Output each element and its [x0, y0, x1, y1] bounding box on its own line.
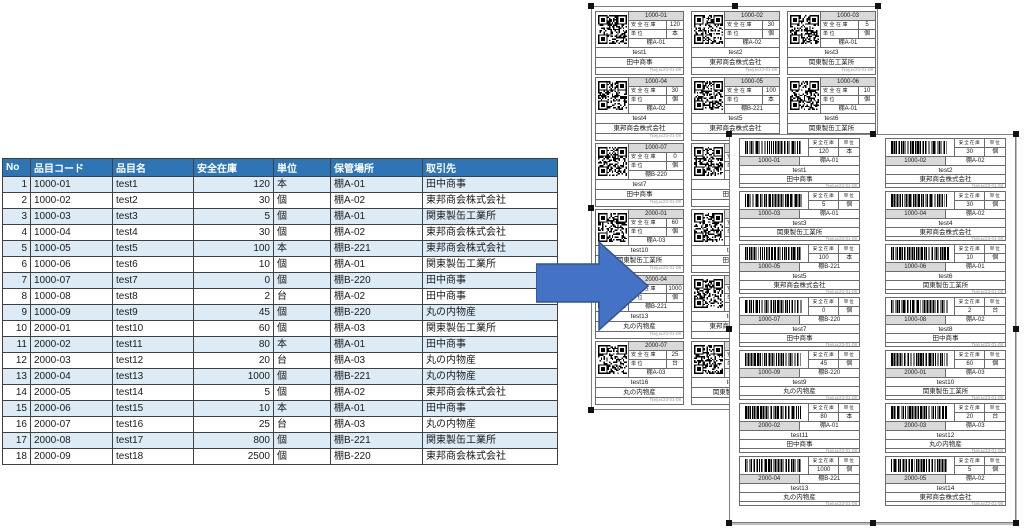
cell-safety-stock[interactable]: 60	[194, 321, 274, 337]
cell-item-code[interactable]: 1000-04	[31, 225, 113, 241]
label-safety-stock-value: 30	[762, 21, 779, 29]
cell-unit[interactable]: 個	[274, 369, 331, 385]
cell-supplier[interactable]: 東邦商会株式会社	[423, 449, 558, 465]
qr-code-icon	[596, 78, 629, 113]
table-row: 9 1000-09 test9 45 個 棚B-220 丸の内物産	[3, 305, 558, 321]
label-footer-note: 作成日23-01-08	[740, 290, 859, 293]
label-safety-stock-caption: 安全在庫	[955, 404, 985, 412]
qr-label: 1000-03 安全在庫 5 単位 個 棚A-01 test3 関東製缶工業所 …	[787, 11, 876, 75]
label-safety-stock-value: 30	[955, 148, 985, 156]
label-item-name: test13	[740, 484, 859, 493]
cell-supplier[interactable]: 田中商事	[423, 337, 558, 353]
barcode-label: 安全在庫 単位 120 本 1000-01 棚A-01 test1 田中商事 作…	[739, 138, 860, 188]
cell-item-code[interactable]: 2000-05	[31, 385, 113, 401]
table-row: 17 2000-08 test17 800 個 棚B-221 関東製缶工業所	[3, 433, 558, 449]
selection-handle[interactable]	[732, 3, 738, 9]
label-location: 棚A-02	[946, 475, 1006, 483]
label-item-name: test16	[596, 378, 683, 388]
cell-location[interactable]: 棚B-221	[331, 241, 423, 257]
barcode-icon	[740, 192, 809, 209]
label-location: 棚A-02	[946, 316, 1006, 324]
label-safety-stock-caption: 安全在庫	[809, 404, 839, 412]
label-item-name: test2	[886, 166, 1005, 175]
label-item-code: 1000-03	[821, 12, 875, 21]
cell-unit[interactable]: 個	[274, 433, 331, 449]
label-location: 棚A-02	[629, 105, 683, 113]
label-unit-caption: 単位	[985, 298, 1005, 306]
label-unit-caption: 単位	[985, 139, 1005, 147]
label-safety-stock-value: 20	[955, 413, 985, 421]
cell-location[interactable]: 棚A-03	[331, 353, 423, 369]
label-safety-stock-caption: 安全在庫	[955, 192, 985, 200]
cell-item-name[interactable]: test11	[113, 337, 194, 353]
label-unit-value: 個	[985, 360, 1005, 368]
selection-handle[interactable]	[588, 205, 594, 211]
barcode-icon	[740, 298, 809, 315]
label-safety-stock-caption: 安全在庫	[809, 351, 839, 359]
cell-item-name[interactable]: test15	[113, 401, 194, 417]
label-location: 棚B-220	[800, 369, 860, 377]
cell-no[interactable]: 3	[3, 209, 31, 225]
cell-location[interactable]: 棚A-03	[331, 321, 423, 337]
cell-no[interactable]: 4	[3, 225, 31, 241]
label-safety-stock-caption: 安全在庫	[955, 139, 985, 147]
label-item-name: test3	[740, 219, 859, 228]
cell-safety-stock[interactable]: 100	[194, 241, 274, 257]
cell-safety-stock[interactable]: 30	[194, 225, 274, 241]
label-footer-note: 作成日23-01-08	[740, 449, 859, 452]
cell-location[interactable]: 棚A-03	[331, 417, 423, 433]
qr-label: 1000-05 安全在庫 100 単位 本 棚B-221 test5 東邦商会株…	[691, 77, 780, 141]
cell-no[interactable]: 11	[3, 337, 31, 353]
label-unit-caption: 単位	[839, 457, 859, 465]
cell-unit[interactable]: 個	[274, 305, 331, 321]
table-row: 12 2000-03 test12 20 台 棚A-03 丸の内物産	[3, 353, 558, 369]
cell-location[interactable]: 棚A-02	[331, 385, 423, 401]
label-footer-note: 作成日23-01-08	[886, 290, 1005, 293]
label-safety-stock-value: 10	[955, 254, 985, 262]
cell-supplier[interactable]: 関東製缶工業所	[423, 209, 558, 225]
arrow-shape[interactable]	[536, 242, 648, 330]
cell-item-code[interactable]: 1000-09	[31, 305, 113, 321]
cell-location[interactable]: 棚B-220	[331, 305, 423, 321]
column-header-1[interactable]: 品目コード	[31, 159, 113, 177]
table-row: 5 1000-05 test5 100 本 棚B-221 東邦商会株式会社	[3, 241, 558, 257]
cell-item-name[interactable]: test16	[113, 417, 194, 433]
qr-code-icon	[692, 276, 725, 311]
selection-handle[interactable]	[1013, 131, 1019, 137]
cell-item-code[interactable]: 2000-03	[31, 353, 113, 369]
cell-item-name[interactable]: test2	[113, 193, 194, 209]
label-unit-caption: 単位	[839, 192, 859, 200]
label-item-code: 1000-04	[629, 78, 683, 87]
cell-no[interactable]: 8	[3, 289, 31, 305]
barcode-label: 安全在庫 単位 45 個 1000-09 棚B-220 test9 丸の内物産 …	[739, 350, 860, 400]
cell-unit[interactable]: 個	[274, 273, 331, 289]
cell-location[interactable]: 棚A-01	[331, 177, 423, 193]
qr-code-icon	[692, 210, 725, 245]
selection-handle[interactable]	[870, 520, 876, 526]
label-unit-caption: 単位	[985, 404, 1005, 412]
cell-location[interactable]: 棚A-02	[331, 225, 423, 241]
cell-unit[interactable]: 個	[274, 385, 331, 401]
selection-handle[interactable]	[726, 131, 732, 137]
label-unit-caption: 単位	[629, 360, 666, 368]
cell-item-code[interactable]: 2000-04	[31, 369, 113, 385]
label-unit-value: 個	[985, 148, 1005, 156]
cell-safety-stock[interactable]: 30	[194, 193, 274, 209]
cell-item-code[interactable]: 1000-07	[31, 273, 113, 289]
cell-item-name[interactable]: test4	[113, 225, 194, 241]
cell-supplier[interactable]: 丸の内物産	[423, 369, 558, 385]
qr-label: 1000-07 安全在庫 0 単位 個 棚B-220 test7 田中商事 作成…	[595, 143, 684, 207]
label-supplier: 田中商事	[740, 440, 859, 449]
label-safety-stock-value: 1000	[809, 466, 839, 474]
cell-safety-stock[interactable]: 20	[194, 353, 274, 369]
cell-no[interactable]: 16	[3, 417, 31, 433]
cell-no[interactable]: 15	[3, 401, 31, 417]
label-unit-value: 台	[985, 413, 1005, 421]
selection-handle[interactable]	[588, 407, 594, 413]
cell-item-name[interactable]: test6	[113, 257, 194, 273]
cell-item-code[interactable]: 1000-03	[31, 209, 113, 225]
table-row: 10 2000-01 test10 60 個 棚A-03 関東製缶工業所	[3, 321, 558, 337]
qr-code-icon	[692, 78, 725, 113]
label-item-code: 1000-05	[725, 78, 779, 87]
selection-handle[interactable]	[588, 3, 594, 9]
table-row: 8 1000-08 test8 2 台 棚A-02 田中商事	[3, 289, 558, 305]
cell-item-name[interactable]: test1	[113, 177, 194, 193]
label-supplier: 田中商事	[596, 58, 683, 68]
label-unit-caption: 単位	[839, 404, 859, 412]
cell-location[interactable]: 棚A-02	[331, 289, 423, 305]
cell-item-name[interactable]: test14	[113, 385, 194, 401]
label-unit-value: 個	[666, 162, 683, 170]
barcode-icon	[886, 139, 955, 156]
cell-item-name[interactable]: test8	[113, 289, 194, 305]
qr-code-icon	[692, 144, 725, 179]
label-safety-stock-caption: 安全在庫	[955, 351, 985, 359]
inventory-table[interactable]: No品目コード品目名安全在庫単位保管場所取引先 1 1000-01 test1 …	[2, 158, 558, 465]
label-footer-note: 作成日23-01-08	[886, 343, 1005, 346]
label-safety-stock-caption: 安全在庫	[629, 21, 666, 29]
cell-item-code[interactable]: 2000-06	[31, 401, 113, 417]
label-item-code: 1000-02	[725, 12, 779, 21]
cell-unit[interactable]: 個	[274, 257, 331, 273]
label-safety-stock-value: 5	[955, 466, 985, 474]
cell-item-code[interactable]: 2000-08	[31, 433, 113, 449]
cell-no[interactable]: 5	[3, 241, 31, 257]
cell-item-code[interactable]: 2000-01	[31, 321, 113, 337]
label-unit-caption: 単位	[839, 139, 859, 147]
label-item-code: 2000-05	[886, 475, 946, 483]
cell-no[interactable]: 9	[3, 305, 31, 321]
label-unit-value: 個	[985, 254, 1005, 262]
label-unit-caption: 単位	[629, 228, 666, 236]
label-supplier: 丸の内物産	[740, 493, 859, 502]
cell-safety-stock[interactable]: 2500	[194, 449, 274, 465]
barcode-label: 安全在庫 単位 20 台 2000-03 棚A-03 test12 丸の内物産 …	[885, 403, 1006, 453]
qr-label: 1000-04 安全在庫 30 単位 個 棚A-02 test4 東邦商会株式会…	[595, 77, 684, 141]
cell-safety-stock[interactable]: 1000	[194, 369, 274, 385]
cell-item-code[interactable]: 1000-05	[31, 241, 113, 257]
cell-item-name[interactable]: test18	[113, 449, 194, 465]
label-item-code: 2000-01	[629, 210, 683, 219]
label-safety-stock-value: 45	[809, 360, 839, 368]
barcode-label: 安全在庫 単位 80 本 2000-02 棚A-01 test11 田中商事 作…	[739, 403, 860, 453]
cell-unit[interactable]: 個	[274, 225, 331, 241]
label-item-name: test4	[886, 219, 1005, 228]
cell-item-name[interactable]: test17	[113, 433, 194, 449]
label-item-code: 2000-01	[886, 369, 946, 377]
label-unit-caption: 単位	[725, 30, 762, 38]
label-location: 棚B-220	[629, 171, 683, 179]
label-safety-stock-caption: 安全在庫	[809, 245, 839, 253]
cell-location[interactable]: 棚B-220	[331, 449, 423, 465]
cell-safety-stock[interactable]: 10	[194, 401, 274, 417]
cell-no[interactable]: 13	[3, 369, 31, 385]
cell-item-code[interactable]: 2000-02	[31, 337, 113, 353]
cell-no[interactable]: 6	[3, 257, 31, 273]
cell-location[interactable]: 棚A-01	[331, 401, 423, 417]
cell-location[interactable]: 棚B-221	[331, 369, 423, 385]
label-unit-value: 個	[858, 30, 875, 38]
label-footer-note: 作成日23-01-08	[596, 200, 683, 206]
cell-safety-stock[interactable]: 2	[194, 289, 274, 305]
cell-no[interactable]: 17	[3, 433, 31, 449]
label-item-code: 1000-05	[740, 263, 800, 271]
column-header-5[interactable]: 保管場所	[331, 159, 423, 177]
cell-location[interactable]: 棚A-01	[331, 257, 423, 273]
label-safety-stock-value: 100	[809, 254, 839, 262]
column-header-2[interactable]: 品目名	[113, 159, 194, 177]
label-location: 棚B-221	[725, 105, 779, 113]
label-unit-value: 個	[985, 201, 1005, 209]
label-location: 棚B-221	[800, 263, 860, 271]
label-safety-stock-value: 0	[666, 153, 683, 161]
label-location: 棚A-01	[946, 263, 1006, 271]
cell-location[interactable]: 棚A-02	[331, 193, 423, 209]
label-location: 棚B-221	[800, 475, 860, 483]
label-location: 棚A-01	[800, 157, 860, 165]
selection-handle[interactable]	[870, 131, 876, 137]
cell-item-code[interactable]: 2000-07	[31, 417, 113, 433]
label-supplier: 関東製缶工業所	[788, 58, 875, 68]
barcode-icon	[886, 245, 955, 262]
cell-supplier[interactable]: 丸の内物産	[423, 353, 558, 369]
cell-supplier[interactable]: 田中商事	[423, 177, 558, 193]
cell-item-name[interactable]: test3	[113, 209, 194, 225]
barcode-label: 安全在庫 単位 60 個 2000-01 棚A-03 test10 関東製缶工業…	[885, 350, 1006, 400]
label-supplier: 田中商事	[740, 334, 859, 343]
cell-unit[interactable]: 台	[274, 353, 331, 369]
label-unit-caption: 単位	[985, 351, 1005, 359]
barcode-label-sheet[interactable]: 安全在庫 単位 120 本 1000-01 棚A-01 test1 田中商事 作…	[729, 134, 1016, 523]
cell-safety-stock[interactable]: 45	[194, 305, 274, 321]
label-footer-note: 作成日23-01-08	[740, 502, 859, 505]
cell-item-name[interactable]: test7	[113, 273, 194, 289]
label-item-name: test5	[740, 272, 859, 281]
cell-supplier[interactable]: 関東製缶工業所	[423, 433, 558, 449]
selection-handle[interactable]	[1013, 326, 1019, 332]
label-unit-caption: 単位	[839, 298, 859, 306]
cell-safety-stock[interactable]: 5	[194, 385, 274, 401]
cell-no[interactable]: 10	[3, 321, 31, 337]
qr-code-icon	[692, 342, 725, 377]
cell-no[interactable]: 1	[3, 177, 31, 193]
label-safety-stock-caption: 安全在庫	[955, 457, 985, 465]
cell-no[interactable]: 2	[3, 193, 31, 209]
table-row: 6 1000-06 test6 10 個 棚A-01 関東製缶工業所	[3, 257, 558, 273]
label-item-name: test8	[886, 325, 1005, 334]
label-item-code: 2000-07	[629, 342, 683, 351]
label-safety-stock-caption: 安全在庫	[725, 21, 762, 29]
qr-code-icon	[788, 12, 821, 47]
label-location: 棚A-03	[946, 422, 1006, 430]
cell-unit[interactable]: 台	[274, 289, 331, 305]
cell-item-code[interactable]: 1000-02	[31, 193, 113, 209]
qr-label: 1000-06 安全在庫 10 単位 個 棚A-01 test6 関東製缶工業所…	[787, 77, 876, 141]
barcode-label: 安全在庫 単位 30 個 1000-02 棚A-02 test2 東邦商会株式会…	[885, 138, 1006, 188]
label-supplier: 田中商事	[886, 334, 1005, 343]
column-header-6[interactable]: 取引先	[423, 159, 558, 177]
qr-code-icon	[596, 12, 629, 47]
label-item-name: test4	[596, 114, 683, 124]
selection-handle[interactable]	[875, 3, 881, 9]
label-safety-stock-caption: 安全在庫	[629, 351, 666, 359]
cell-item-name[interactable]: test13	[113, 369, 194, 385]
label-supplier: 丸の内物産	[886, 440, 1005, 449]
label-supplier: 関東製缶工業所	[740, 228, 859, 237]
label-safety-stock-value: 120	[666, 21, 683, 29]
cell-safety-stock[interactable]: 10	[194, 257, 274, 273]
barcode-label: 安全在庫 単位 30 個 1000-04 棚A-02 test4 東邦商会株式会…	[885, 191, 1006, 241]
cell-safety-stock[interactable]: 80	[194, 337, 274, 353]
cell-item-code[interactable]: 2000-09	[31, 449, 113, 465]
cell-unit[interactable]: 本	[274, 241, 331, 257]
label-location: 棚A-03	[629, 369, 683, 377]
cell-item-name[interactable]: test10	[113, 321, 194, 337]
label-safety-stock-caption: 安全在庫	[809, 192, 839, 200]
label-safety-stock-value: 1000	[666, 285, 683, 293]
label-unit-value: 台	[666, 360, 683, 368]
cell-unit[interactable]: 個	[274, 449, 331, 465]
column-header-0[interactable]: No	[3, 159, 31, 177]
cell-safety-stock[interactable]: 25	[194, 417, 274, 433]
cell-no[interactable]: 12	[3, 353, 31, 369]
label-item-code: 2000-03	[886, 422, 946, 430]
cell-no[interactable]: 14	[3, 385, 31, 401]
cell-unit[interactable]: 個	[274, 193, 331, 209]
cell-unit[interactable]: 台	[274, 417, 331, 433]
label-unit-caption: 単位	[821, 96, 858, 104]
cell-location[interactable]: 棚A-01	[331, 337, 423, 353]
cell-location[interactable]: 棚A-01	[331, 209, 423, 225]
cell-supplier[interactable]: 東邦商会株式会社	[423, 193, 558, 209]
label-safety-stock-caption: 安全在庫	[955, 298, 985, 306]
label-unit-caption: 単位	[985, 192, 1005, 200]
label-supplier: 田中商事	[596, 190, 683, 200]
cell-supplier[interactable]: 東邦商会株式会社	[423, 225, 558, 241]
cell-location[interactable]: 棚B-220	[331, 273, 423, 289]
selection-handle[interactable]	[726, 326, 732, 332]
label-footer-note: 作成日23-01-08	[740, 396, 859, 399]
cell-item-name[interactable]: test12	[113, 353, 194, 369]
barcode-label-grid: 安全在庫 単位 120 本 1000-01 棚A-01 test1 田中商事 作…	[739, 138, 1006, 506]
barcode-icon	[886, 192, 955, 209]
barcode-label: 安全在庫 単位 1000 個 2000-04 棚B-221 test13 丸の内…	[739, 456, 860, 506]
label-unit-value: 個	[839, 466, 859, 474]
selection-handle[interactable]	[726, 520, 732, 526]
cell-safety-stock[interactable]: 800	[194, 433, 274, 449]
label-unit-value: 個	[666, 228, 683, 236]
column-header-3[interactable]: 安全在庫	[194, 159, 274, 177]
label-item-code: 1000-01	[740, 157, 800, 165]
flow-arrow[interactable]	[536, 240, 650, 332]
label-safety-stock-value: 0	[809, 307, 839, 315]
label-footer-note: 作成日23-01-08	[740, 343, 859, 346]
cell-unit[interactable]: 本	[274, 177, 331, 193]
barcode-icon	[886, 404, 955, 421]
label-item-name: test6	[788, 114, 875, 124]
label-item-code: 1000-06	[821, 78, 875, 87]
cell-supplier[interactable]: 丸の内物産	[423, 417, 558, 433]
qr-label: 1000-02 安全在庫 30 単位 個 棚A-02 test2 東邦商会株式会…	[691, 11, 780, 75]
cell-item-name[interactable]: test5	[113, 241, 194, 257]
barcode-label: 安全在庫 単位 100 本 1000-05 棚B-221 test5 東邦商会株…	[739, 244, 860, 294]
label-supplier: 東邦商会株式会社	[692, 58, 779, 68]
cell-supplier[interactable]: 田中商事	[423, 401, 558, 417]
cell-unit[interactable]: 本	[274, 337, 331, 353]
cell-unit[interactable]: 本	[274, 401, 331, 417]
label-safety-stock-caption: 安全在庫	[809, 139, 839, 147]
cell-item-code[interactable]: 1000-08	[31, 289, 113, 305]
label-item-name: test14	[886, 484, 1005, 493]
label-supplier: 田中商事	[740, 175, 859, 184]
cell-safety-stock[interactable]: 5	[194, 209, 274, 225]
selection-handle[interactable]	[1013, 520, 1019, 526]
cell-unit[interactable]: 個	[274, 209, 331, 225]
label-safety-stock-value: 60	[666, 219, 683, 227]
cell-unit[interactable]: 個	[274, 321, 331, 337]
table-row: 1 1000-01 test1 120 本 棚A-01 田中商事	[3, 177, 558, 193]
label-safety-stock-caption: 安全在庫	[629, 219, 666, 227]
label-item-code: 2000-02	[740, 422, 800, 430]
cell-safety-stock[interactable]: 0	[194, 273, 274, 289]
label-supplier: 東邦商会株式会社	[692, 124, 779, 134]
cell-location[interactable]: 棚B-221	[331, 433, 423, 449]
label-item-code: 1000-06	[886, 263, 946, 271]
barcode-icon	[886, 351, 955, 368]
label-item-code: 1000-02	[886, 157, 946, 165]
label-supplier: 東邦商会株式会社	[886, 493, 1005, 502]
cell-item-code[interactable]: 1000-06	[31, 257, 113, 273]
cell-item-code[interactable]: 1000-01	[31, 177, 113, 193]
label-safety-stock-caption: 安全在庫	[955, 245, 985, 253]
cell-no[interactable]: 7	[3, 273, 31, 289]
table-row: 16 2000-07 test16 25 台 棚A-03 丸の内物産	[3, 417, 558, 433]
label-safety-stock-caption: 安全在庫	[629, 87, 666, 95]
column-header-4[interactable]: 単位	[274, 159, 331, 177]
label-item-code: 1000-09	[740, 369, 800, 377]
label-footer-note: 作成日23-01-08	[788, 68, 875, 74]
cell-safety-stock[interactable]: 120	[194, 177, 274, 193]
cell-item-name[interactable]: test9	[113, 305, 194, 321]
barcode-icon	[740, 457, 809, 474]
cell-no[interactable]: 18	[3, 449, 31, 465]
cell-supplier[interactable]: 東邦商会株式会社	[423, 385, 558, 401]
label-safety-stock-value: 10	[858, 87, 875, 95]
